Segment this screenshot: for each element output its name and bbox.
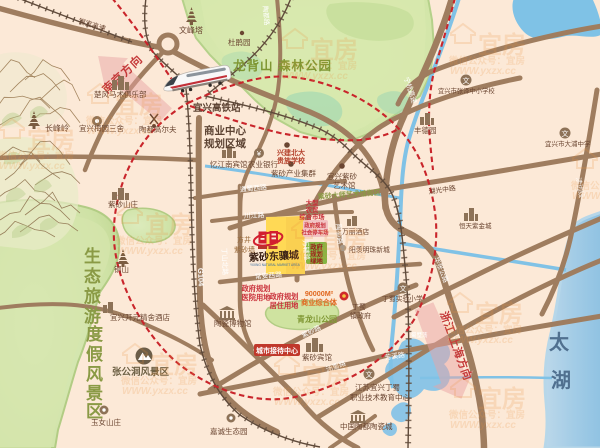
svg-text:生: 生 [84, 246, 101, 266]
svg-text:镇政府: 镇政府 [350, 311, 371, 320]
svg-text:规划区域: 规划区域 [204, 137, 246, 150]
svg-text:宜房: 宜房 [310, 36, 358, 64]
svg-text:商业综合体: 商业综合体 [301, 298, 338, 307]
svg-text:嘉诚生态园: 嘉诚生态园 [210, 426, 248, 436]
svg-text:大型: 大型 [306, 198, 319, 207]
svg-text:农业银行: 农业银行 [248, 159, 278, 169]
svg-text:游: 游 [84, 306, 101, 326]
svg-text:宜兴市张泽中小学校: 宜兴市张泽中小学校 [438, 86, 495, 95]
svg-text:忆江南宾馆: 忆江南宾馆 [210, 159, 248, 169]
svg-text:风: 风 [86, 365, 103, 384]
svg-text:湖: 湖 [551, 369, 571, 392]
svg-text:态: 态 [84, 266, 101, 286]
svg-text:宜兴开元精舍酒店: 宜兴开元精舍酒店 [110, 312, 170, 322]
svg-text:紫砂宾馆: 紫砂宾馆 [302, 352, 332, 362]
svg-text:江苏宜兴丁蜀: 江苏宜兴丁蜀 [355, 382, 400, 392]
svg-text:丁蜀: 丁蜀 [352, 303, 366, 311]
svg-text:景: 景 [86, 384, 103, 403]
svg-text:恒天紫金城: 恒天紫金城 [459, 221, 492, 230]
svg-text:太: 太 [549, 331, 570, 354]
svg-text:蜀墅荡: 蜀墅荡 [411, 331, 428, 339]
svg-text:宜兴紫砂: 宜兴紫砂 [327, 171, 357, 181]
svg-text:文: 文 [366, 370, 373, 379]
svg-text:丰德园: 丰德园 [414, 125, 437, 135]
svg-text:农贸: 农贸 [305, 205, 319, 214]
svg-text:青龙山公园: 青龙山公园 [297, 314, 337, 324]
svg-text:政府规划: 政府规划 [242, 284, 271, 293]
svg-text:杜鹃园: 杜鹃园 [228, 37, 251, 47]
svg-text:WWW.yxzx.cc: WWW.yxzx.cc [282, 71, 348, 82]
svg-text:丁蜀实验小学: 丁蜀实验小学 [382, 294, 423, 303]
svg-text:文: 文 [463, 76, 470, 85]
svg-text:假: 假 [86, 344, 103, 364]
svg-text:贵族学校: 贵族学校 [277, 156, 306, 165]
svg-text:兴建北大: 兴建北大 [277, 148, 305, 157]
svg-text:G104: G104 [196, 268, 206, 287]
svg-text:紫砂墙: 紫砂墙 [234, 245, 255, 254]
svg-text:政府规划: 政府规划 [270, 292, 299, 301]
svg-text:职业技术教育中心: 职业技术教育中心 [350, 392, 410, 402]
svg-text:紫砂产业集群: 紫砂产业集群 [271, 168, 316, 178]
svg-text:宜兴市大浦中学: 宜兴市大浦中学 [545, 139, 591, 148]
svg-text:中国陶都陶瓷城: 中国陶都陶瓷城 [340, 421, 393, 431]
svg-text:医院用地: 医院用地 [242, 293, 272, 302]
svg-text:铜山: 铜山 [114, 264, 129, 274]
svg-text:文: 文 [562, 129, 569, 138]
svg-text:宜兴高铁站: 宜兴高铁站 [193, 102, 241, 114]
svg-text:方井: 方井 [237, 235, 251, 244]
svg-text:艺术馆: 艺术馆 [333, 180, 356, 190]
svg-text:90000M²: 90000M² [305, 289, 334, 298]
svg-text:区: 区 [86, 402, 103, 421]
svg-text:居住用地: 居住用地 [270, 301, 300, 310]
svg-text:文: 文 [400, 284, 407, 293]
svg-text:度: 度 [86, 324, 104, 344]
svg-text:商业中心: 商业中心 [204, 124, 246, 137]
svg-text:文峰塔: 文峰塔 [179, 25, 203, 35]
svg-text:陶瓷博物馆: 陶瓷博物馆 [214, 318, 252, 328]
svg-text:城市接待中心: 城市接待中心 [256, 346, 298, 355]
svg-text:旅: 旅 [84, 286, 101, 306]
